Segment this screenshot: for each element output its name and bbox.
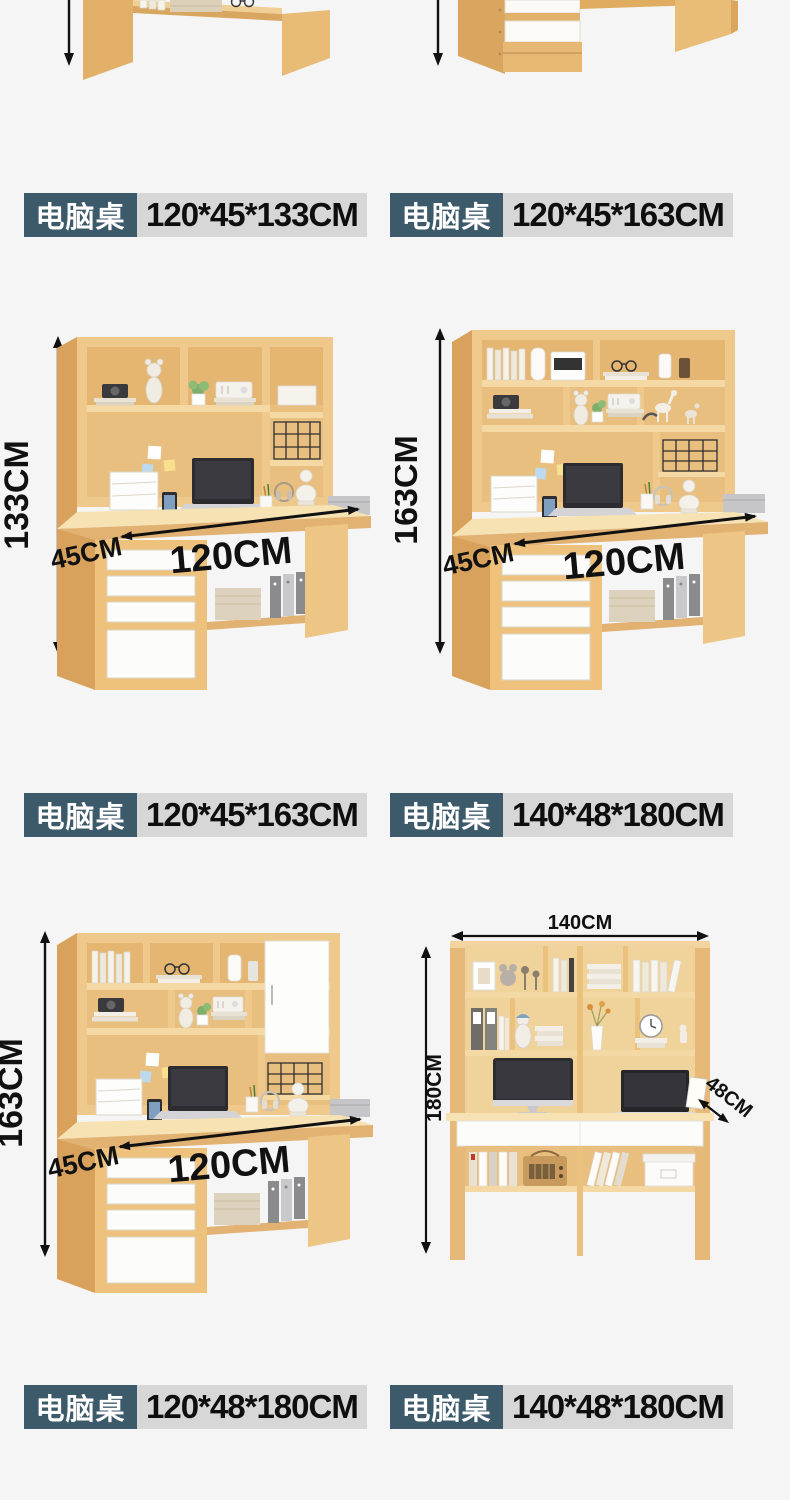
product-size-text: 120*45*163CM: [137, 793, 367, 837]
desk-leg-panel: [83, 0, 133, 80]
product-size-text: 120*45*163CM: [503, 193, 733, 237]
desk-photo-140x48x180: 140CM 180CM: [395, 880, 790, 1290]
desk-photo-120x45x163-cabinet: 163CM: [0, 903, 395, 1303]
desk-leg-panel: [282, 10, 330, 76]
binders: [270, 572, 307, 618]
small-jar: [248, 961, 258, 981]
height-dimension-label: 133CM: [0, 440, 36, 550]
desktop: [446, 1113, 714, 1121]
spec-label: 电脑桌 120*45*133CM: [24, 193, 367, 237]
right-cropped-desk: [433, 0, 738, 74]
binders: [663, 574, 700, 620]
product-name-badge: 电脑桌: [24, 1385, 137, 1429]
product-size-text: 120*45*133CM: [137, 193, 367, 237]
spec-label: 电脑桌 140*48*180CM: [390, 793, 733, 837]
gray-storage-box: [723, 494, 765, 513]
height-dimension-label: 163CM: [0, 1038, 30, 1148]
hanging-figurine: [680, 1025, 688, 1044]
white-cabinet-door: [265, 941, 329, 1053]
drawer-unit-front: [503, 0, 582, 72]
height-dimension-label: 163CM: [395, 435, 425, 545]
product-name-badge: 电脑桌: [24, 793, 137, 837]
radio-and-books: [211, 997, 247, 1020]
product-size-text: 140*48*180CM: [503, 793, 733, 837]
right-leg-panel: [305, 524, 348, 638]
arrow-head: [433, 53, 443, 66]
bear-figurine: [574, 391, 589, 426]
white-cylinder: [531, 348, 545, 380]
white-books-row: [633, 960, 681, 993]
desk-photo-120x45x133: 133CM: [0, 300, 395, 700]
width-dimension-label: 140CM: [548, 912, 612, 934]
legs: [450, 1192, 710, 1260]
laptop: [609, 1070, 701, 1117]
desk-leg-panel: [675, 0, 731, 52]
desk-photo-120x45x163: 163CM: [395, 300, 790, 700]
white-books-row: [487, 348, 525, 380]
arrow-head: [64, 53, 74, 66]
spec-label: 电脑桌 120*45*163CM: [24, 793, 367, 837]
radio-and-books: [606, 394, 644, 417]
picture-frame: [473, 962, 495, 990]
flip-clock-1907: [551, 352, 585, 380]
cropped-previous-desk-photos: [0, 0, 790, 130]
product-size-text: 120*48*180CM: [137, 1385, 367, 1429]
amber-bottle: [679, 358, 690, 378]
file-organizer: [110, 472, 158, 510]
file-organizer: [491, 476, 537, 512]
product-detail-page: 电脑桌 120*45*133CM 电脑桌 120*45*163CM 133CM: [0, 0, 790, 1500]
product-name-badge: 电脑桌: [390, 793, 503, 837]
left-cropped-desk: [64, 0, 330, 80]
radio-and-books: [214, 382, 256, 406]
height-dimension-arrow: [435, 328, 445, 654]
white-vase: [228, 955, 241, 981]
product-size-text: 140*48*180CM: [503, 1385, 733, 1429]
spec-label: 电脑桌 120*48*180CM: [24, 1385, 367, 1429]
product-name-badge: 电脑桌: [390, 1385, 503, 1429]
product-name-badge: 电脑桌: [24, 193, 137, 237]
binders: [268, 1177, 305, 1223]
gray-storage-box: [330, 1099, 370, 1117]
file-organizer: [96, 1079, 142, 1115]
white-vase: [659, 354, 671, 378]
right-leg-panel: [703, 531, 745, 644]
right-leg-panel: [308, 1134, 350, 1247]
drawer-unit-side: [458, 0, 505, 74]
height-dimension-label: 180CM: [423, 1054, 446, 1122]
under-desk-shelf: [207, 572, 320, 630]
product-name-badge: 电脑桌: [390, 193, 503, 237]
width-dimension-label: 120CM: [168, 530, 294, 583]
spec-label: 电脑桌 120*45*163CM: [390, 193, 733, 237]
bear-figurine: [179, 994, 194, 1029]
height-dimension-arrow: [40, 931, 50, 1257]
drawer-strip: [457, 1121, 703, 1146]
spec-label: 电脑桌 140*48*180CM: [390, 1385, 733, 1429]
white-books-row: [92, 951, 130, 983]
white-box: [278, 386, 316, 405]
